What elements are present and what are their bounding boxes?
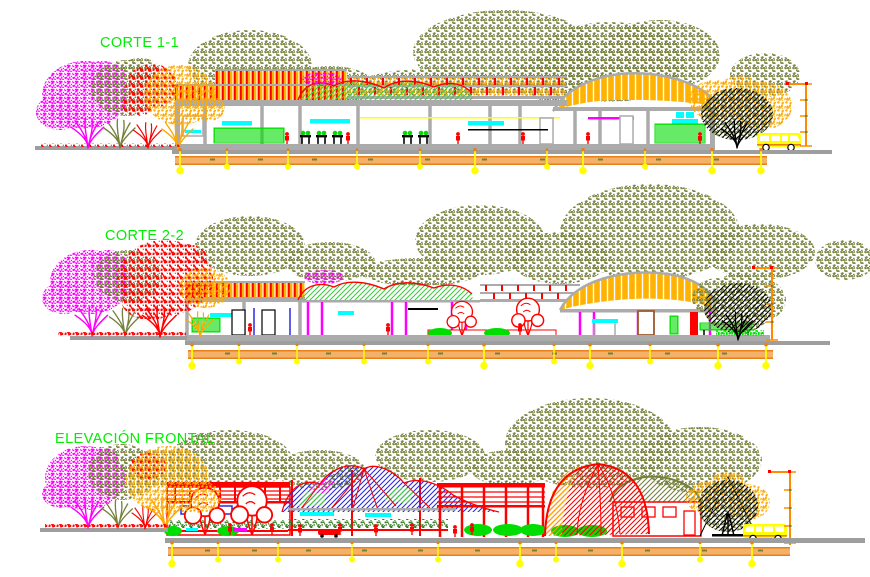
foundation-band	[168, 547, 790, 556]
ground-line-left	[40, 528, 168, 532]
ground-line	[172, 150, 832, 154]
drawing-canvas: CORTE 1-1	[0, 0, 870, 577]
hedge	[288, 519, 448, 528]
ground-line	[185, 341, 830, 345]
background-trees	[195, 184, 870, 286]
interior-left	[192, 308, 290, 335]
ground-line-left	[70, 336, 187, 340]
people	[285, 132, 702, 144]
window	[663, 507, 676, 517]
foundation-band	[188, 350, 773, 359]
roof-slab-right	[553, 107, 715, 111]
roof-slab	[175, 100, 567, 106]
architectural-drawing: CORTE 1-1	[0, 0, 870, 577]
ground-line	[165, 538, 865, 543]
section-elevacion-frontal: ELEVACIÓN FRONTAL	[40, 398, 865, 567]
section-corte-2-2: CORTE 2-2	[42, 184, 870, 369]
interior-center	[338, 308, 438, 335]
tree-cluster-left	[42, 240, 231, 337]
foundation-band	[175, 156, 767, 165]
section-label: CORTE 1-1	[100, 35, 179, 51]
building-section	[185, 270, 770, 343]
van	[757, 133, 801, 151]
door	[684, 511, 695, 535]
building-section	[175, 69, 715, 152]
section-corte-1-1: CORTE 1-1	[35, 10, 832, 174]
patio-trees	[428, 298, 556, 338]
